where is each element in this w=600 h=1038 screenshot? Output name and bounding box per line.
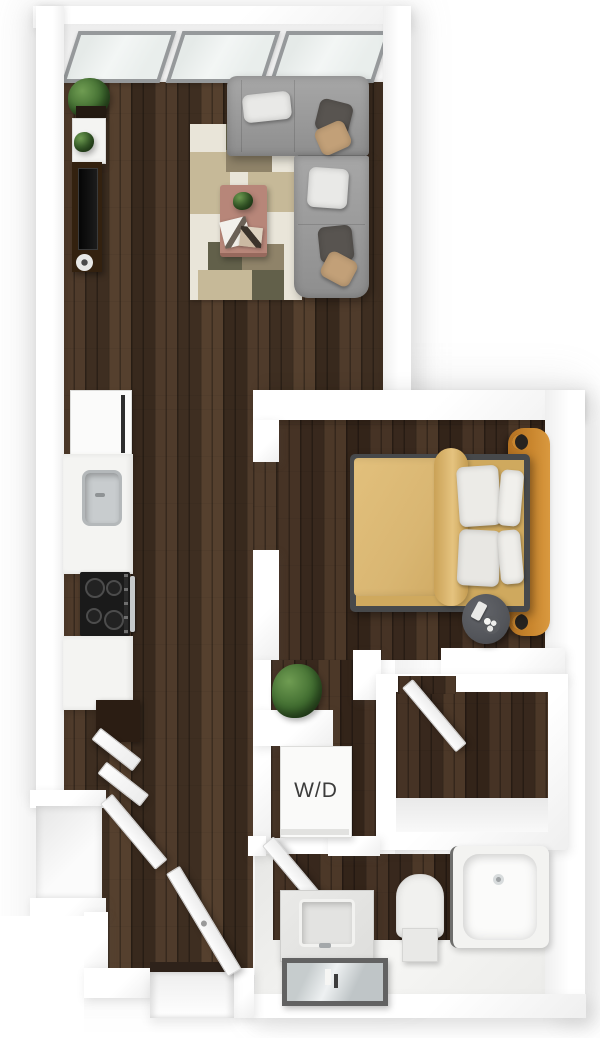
nightstand bbox=[462, 594, 510, 644]
wall-bathroom-top bbox=[328, 836, 380, 856]
window-pane-1 bbox=[62, 31, 177, 83]
nightstand-decor-flowers bbox=[482, 616, 500, 634]
sofa-seam bbox=[298, 224, 365, 225]
bed-pillow-2 bbox=[457, 529, 502, 587]
headboard-knob-top bbox=[512, 434, 528, 450]
burner bbox=[85, 578, 105, 598]
vanity bbox=[280, 890, 374, 962]
coffee-table bbox=[220, 185, 267, 257]
bathtub-basin bbox=[463, 854, 537, 940]
oven-handle bbox=[130, 576, 135, 632]
bathtub-drain bbox=[493, 874, 504, 885]
wall-corridor-left-lower bbox=[84, 912, 108, 972]
kitchen-counter-lower bbox=[63, 636, 133, 710]
coffee-table-tray bbox=[239, 226, 263, 248]
bed-pillow-3 bbox=[497, 469, 525, 527]
wall-right-living bbox=[383, 6, 411, 398]
vanity-sink bbox=[299, 899, 355, 947]
sofa-pillow-white-mid bbox=[307, 167, 350, 210]
refrigerator bbox=[70, 390, 132, 458]
cooktop-controls bbox=[124, 574, 128, 634]
wall-hall-left bbox=[253, 660, 271, 846]
bed-pillow-4 bbox=[497, 529, 525, 585]
wall-bedroom-left-upper bbox=[253, 420, 279, 462]
tv-screen bbox=[78, 168, 98, 250]
mirror-reflection-items bbox=[325, 969, 331, 985]
wall-entry-right-post bbox=[232, 968, 254, 1018]
speaker bbox=[76, 254, 93, 271]
entry-landing bbox=[150, 972, 234, 1018]
rug-patch bbox=[252, 270, 284, 300]
bedroom-doorway-floor bbox=[253, 458, 279, 554]
kitchen-sink bbox=[82, 470, 122, 526]
wall-left bbox=[36, 6, 64, 796]
refrigerator-handle bbox=[121, 395, 125, 453]
headboard-knob-bottom bbox=[512, 614, 528, 630]
wall-bedroom-left-lower bbox=[253, 550, 279, 660]
rug-patch bbox=[198, 270, 252, 300]
coat-closet-interior bbox=[36, 806, 102, 900]
wall-entry-left bbox=[84, 968, 152, 998]
tv-console bbox=[72, 162, 102, 272]
wall-bedroom-top bbox=[253, 390, 585, 420]
bathtub bbox=[450, 846, 549, 948]
floor-plan-canvas: W/D bbox=[0, 0, 600, 1038]
entry-door-knob bbox=[200, 919, 208, 927]
washer-dryer-label: W/D bbox=[281, 779, 351, 803]
toilet-tank bbox=[402, 928, 438, 962]
window-band bbox=[58, 24, 384, 82]
burner bbox=[104, 610, 124, 630]
sofa-seam bbox=[298, 155, 365, 156]
sofa-pillow-white-top bbox=[242, 91, 293, 124]
washer-dryer-unit: W/D bbox=[280, 746, 352, 838]
closet-inner-wall-face bbox=[396, 798, 548, 832]
sofa-seam bbox=[241, 80, 242, 152]
sofa-seam bbox=[294, 80, 295, 152]
burner bbox=[86, 608, 102, 624]
bed-pillow-1 bbox=[456, 465, 502, 528]
burner bbox=[106, 580, 122, 596]
vanity-faucet bbox=[319, 943, 331, 948]
exterior-mask-bottom-left bbox=[0, 916, 84, 1038]
vanity-mirror bbox=[282, 958, 388, 1006]
coffee-table-plant bbox=[233, 192, 253, 210]
washer-dryer-base-line bbox=[281, 829, 349, 835]
sink-faucet bbox=[95, 493, 105, 497]
cooktop bbox=[80, 572, 130, 636]
